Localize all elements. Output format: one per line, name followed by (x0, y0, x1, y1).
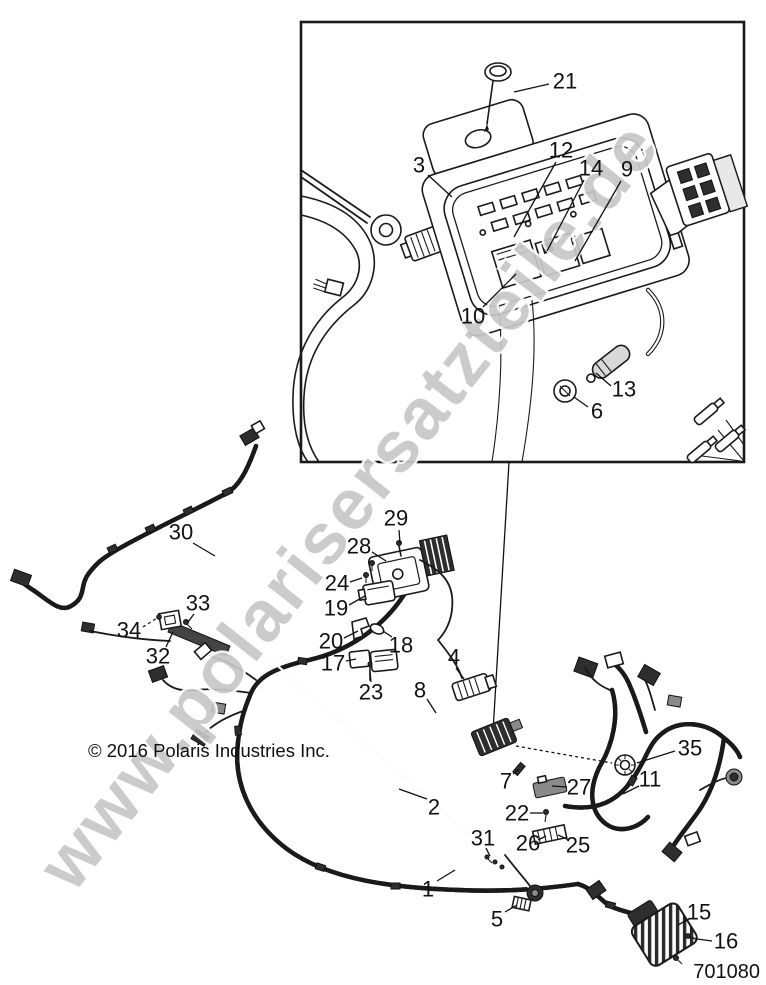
harness30-connector-left (10, 569, 31, 586)
callout-number-34: 34 (117, 618, 141, 643)
callout-number-25: 25 (566, 833, 590, 858)
callout-number-26: 26 (516, 831, 540, 856)
callout-number-24: 24 (325, 571, 349, 596)
callout-number-31: 31 (471, 826, 495, 851)
callout-number-2: 2 (428, 795, 440, 820)
screw-22 (544, 810, 549, 823)
wiring-harness-diagram: www.polarisersatzteile.de © 2016 Polaris… (0, 0, 766, 985)
callout-22: 22 (505, 801, 543, 826)
grommet (554, 380, 576, 402)
callout-8: 8 (414, 678, 436, 714)
round-plug-center (527, 885, 543, 901)
callout-24: 24 (325, 571, 362, 596)
callout-leader-24 (350, 578, 362, 582)
callout-16: 16 (697, 929, 738, 954)
callout-leader-34 (143, 618, 157, 627)
band-clip-5 (512, 896, 531, 910)
callout-number-17: 17 (321, 651, 345, 676)
callout-number-4: 4 (448, 645, 460, 670)
callout-33: 33 (186, 591, 210, 623)
callout-19: 19 (324, 596, 365, 621)
callout-number-10: 10 (461, 304, 485, 329)
callout-number-5: 5 (491, 907, 503, 932)
connector-bottom-right (662, 842, 682, 861)
callout-4: 4 (448, 645, 464, 680)
callout-number-6: 6 (591, 399, 603, 424)
callout-number-8: 8 (414, 678, 426, 703)
copyright-text: © 2016 Polaris Industries Inc. (88, 740, 330, 761)
fusebox-mount (471, 714, 527, 757)
callout-number-21: 21 (553, 69, 577, 94)
callout-number-29: 29 (384, 506, 408, 531)
callout-number-9: 9 (621, 157, 633, 182)
callout-leader-16 (697, 939, 712, 941)
callout-number-12: 12 (549, 138, 573, 163)
callout-number-1: 1 (422, 877, 434, 902)
callout-number-28: 28 (347, 534, 371, 559)
callout-number-18: 18 (389, 633, 413, 658)
callout-leader-4 (456, 668, 464, 679)
callout-29: 29 (384, 506, 408, 544)
callout-35: 35 (637, 736, 702, 764)
callout-leader-1 (437, 870, 455, 881)
relay-19 (358, 580, 396, 606)
callout-34: 34 (117, 618, 157, 643)
callout-number-15: 15 (687, 900, 711, 925)
callout-number-33: 33 (186, 591, 210, 616)
callout-number-27: 27 (567, 775, 591, 800)
callout-1: 1 (422, 870, 455, 902)
callout-32: 32 (146, 632, 173, 669)
callout-2: 2 (399, 789, 440, 820)
callout-number-14: 14 (579, 156, 603, 181)
grommet-18 (369, 622, 385, 636)
part-number: 701080 (693, 961, 760, 983)
callout-leader-8 (427, 699, 436, 713)
callout-leader-35 (637, 751, 675, 763)
callout-number-19: 19 (324, 596, 348, 621)
callout-number-7: 7 (500, 769, 512, 794)
callout-number-32: 32 (146, 644, 170, 669)
bracket-27 (532, 772, 567, 798)
callout-23: 23 (359, 672, 383, 705)
callout-number-11: 11 (639, 767, 662, 792)
regulator-screw (674, 956, 683, 965)
round-plug-right (726, 769, 742, 785)
callout-28: 28 (347, 534, 386, 562)
callout-number-3: 3 (413, 153, 425, 178)
callout-number-22: 22 (505, 801, 529, 826)
callout-5: 5 (491, 905, 517, 932)
callout-number-23: 23 (359, 680, 383, 705)
callout-31: 31 (471, 826, 495, 857)
harness30-connector-top (238, 421, 267, 446)
screw-34 (157, 615, 162, 620)
callout-leader-30 (193, 543, 215, 556)
callout-number-35: 35 (678, 736, 702, 761)
grommet-35 (615, 755, 635, 775)
callout-number-30: 30 (169, 520, 193, 545)
callout-30: 30 (169, 520, 215, 557)
callout-number-16: 16 (714, 929, 738, 954)
connector-4 (451, 671, 497, 701)
inset-reference-line (493, 462, 509, 732)
callout-number-13: 13 (612, 377, 636, 402)
grommet-35-reference (516, 746, 612, 763)
parts-diagram-page: www.polarisersatzteile.de © 2016 Polaris… (0, 0, 766, 985)
